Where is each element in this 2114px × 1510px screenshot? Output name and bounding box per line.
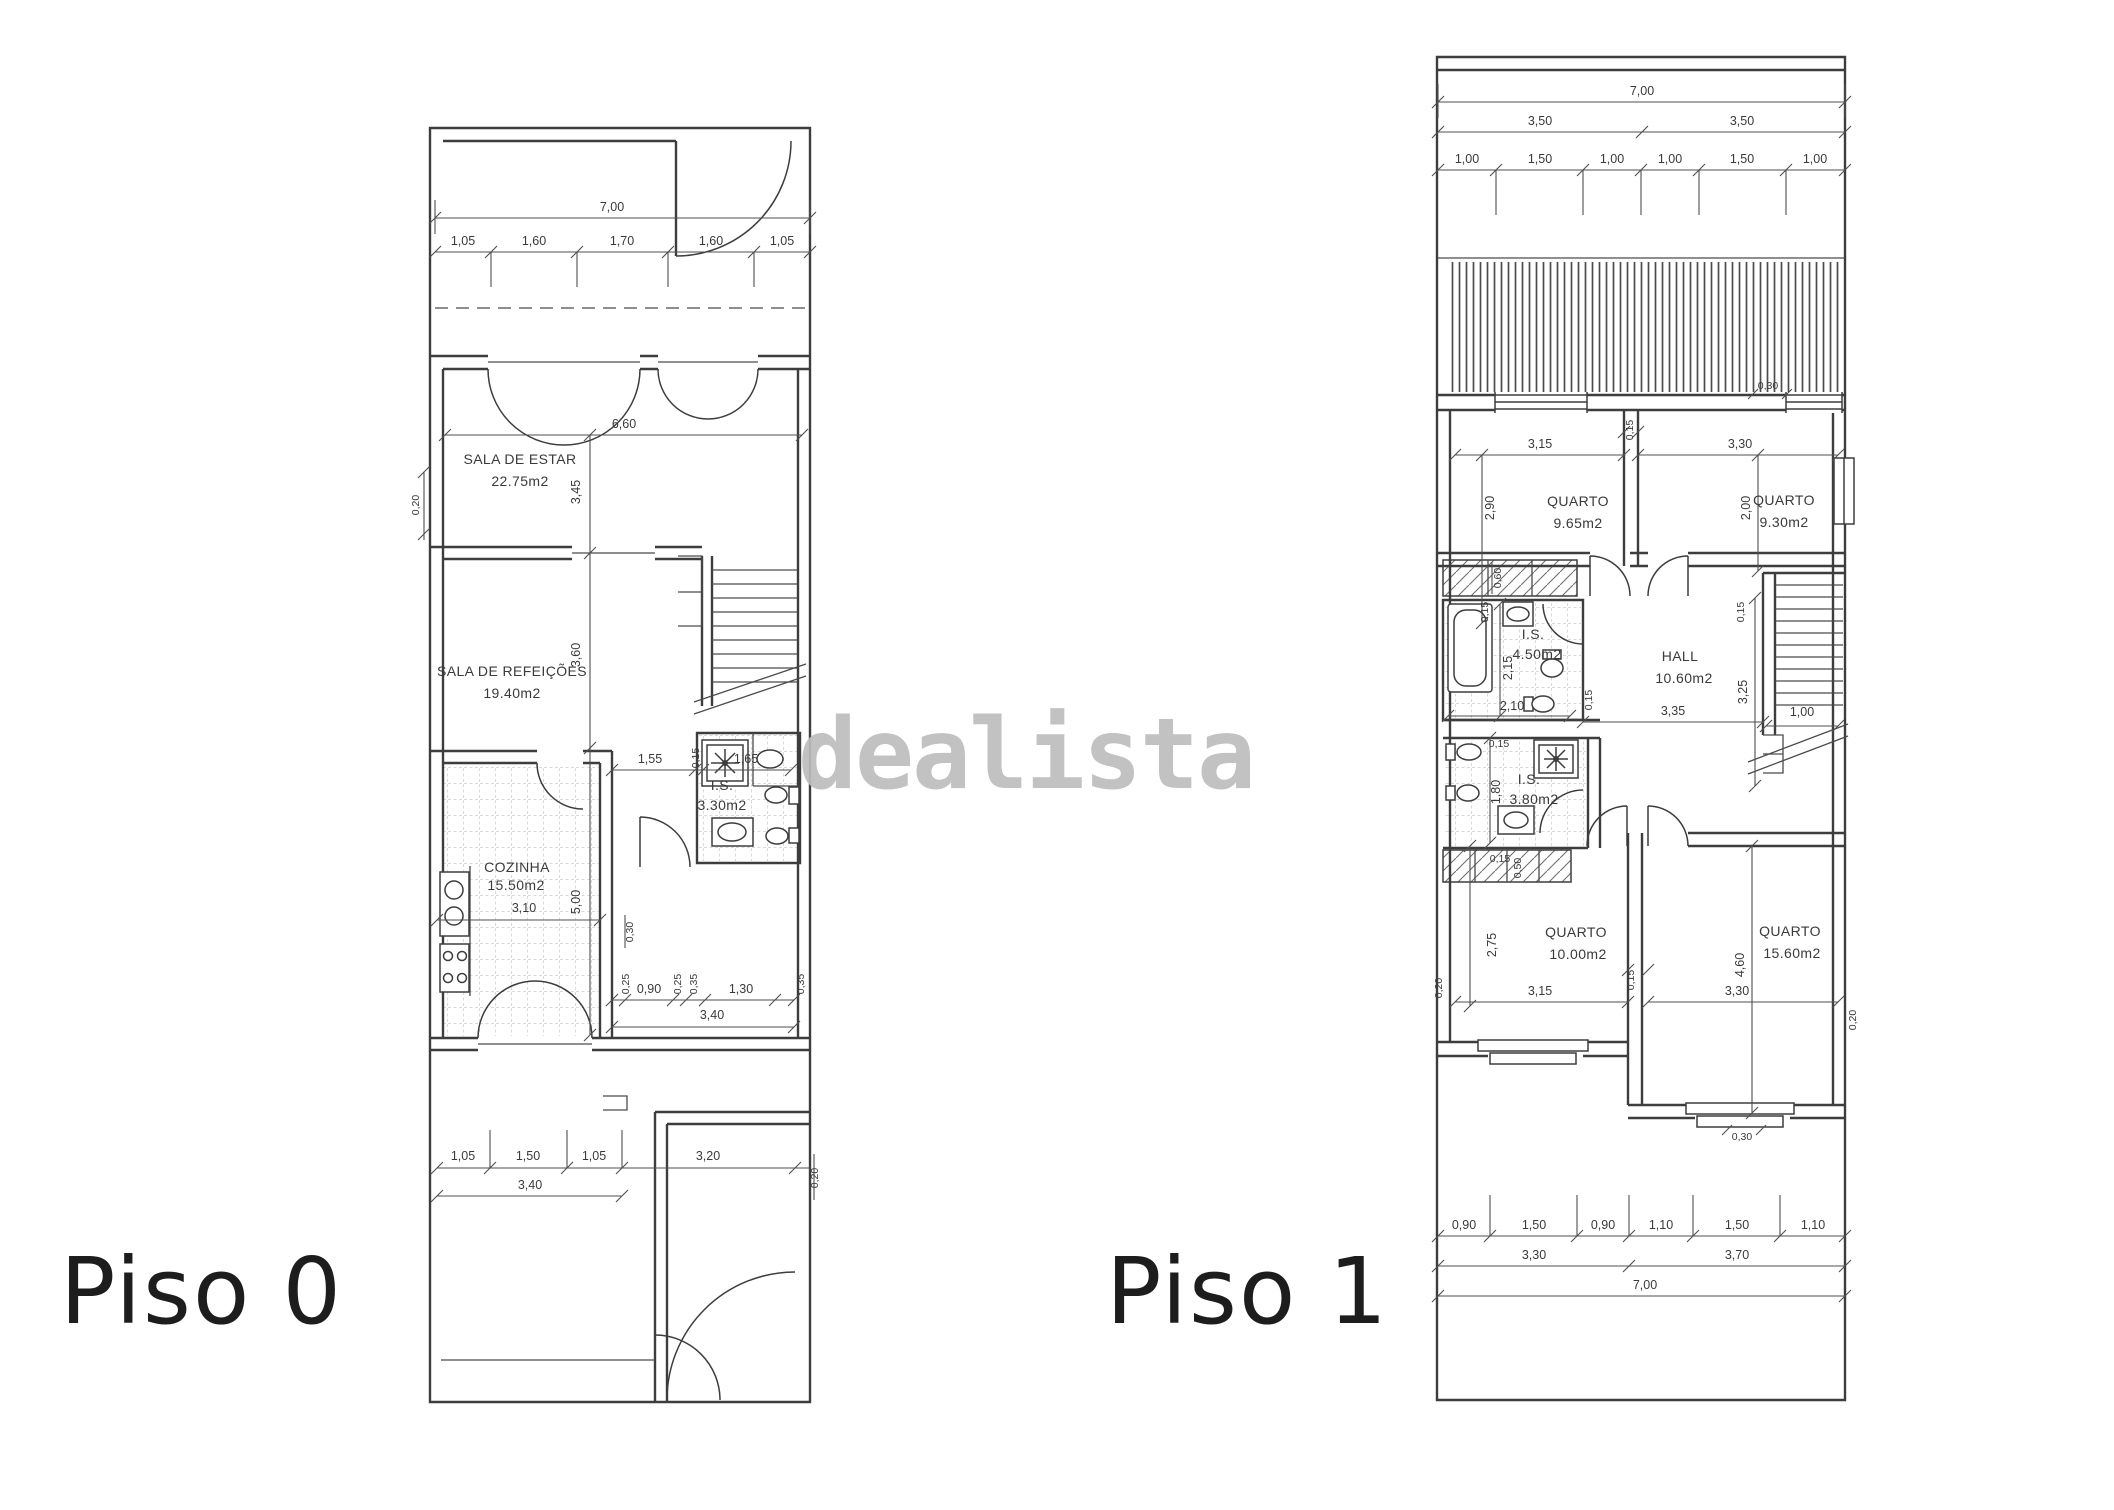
dim: 1,80 (1489, 780, 1503, 804)
room-area: 3.80m2 (1509, 791, 1558, 807)
french-door-living (488, 369, 640, 445)
dim: 7,00 (1633, 1278, 1657, 1292)
dim: 1,50 (1522, 1218, 1546, 1232)
dim: 3,25 (1736, 680, 1750, 704)
room-area: 10.60m2 (1655, 670, 1712, 686)
dim: 3,15 (1528, 984, 1552, 998)
dim: 1,05 (451, 234, 475, 248)
dim: 4,60 (1733, 953, 1747, 977)
dim: 0,20 (809, 1168, 821, 1189)
dim: 7,00 (1630, 84, 1654, 98)
room-name: HALL (1662, 648, 1699, 664)
dim: 1,50 (1528, 152, 1552, 166)
dim: 0,15 (1625, 970, 1637, 991)
toilet-tank (789, 787, 799, 804)
dim: 0,20 (1433, 978, 1445, 999)
dim: 3,50 (1730, 114, 1754, 128)
room-area: 22.75m2 (491, 473, 548, 489)
dim: 1,10 (1649, 1218, 1673, 1232)
dim: 0,15 (1479, 602, 1491, 623)
piso1-plan: 7,00 3,50 3,50 1,00 1,50 1,00 1,00 1,50 … (1432, 57, 1859, 1400)
shower-2-drain (1553, 756, 1559, 762)
dim: 0,90 (1452, 1218, 1476, 1232)
room-name: I.S. (1518, 771, 1541, 787)
dim: 0,15 (1489, 738, 1510, 750)
dim: 0,30 (1732, 1131, 1753, 1143)
room-name: COZINHA (484, 859, 550, 875)
dim: 1,05 (770, 234, 794, 248)
toilet-2 (1457, 744, 1481, 760)
toilet (765, 787, 787, 803)
dim: 2,75 (1485, 933, 1499, 957)
dim: 1,00 (1455, 152, 1479, 166)
dim: 3,50 (1528, 114, 1552, 128)
room-name: QUARTO (1753, 492, 1815, 508)
dim: 3,30 (1728, 437, 1752, 451)
washbasin (757, 750, 783, 768)
room-area: 4.50m2 (1512, 646, 1561, 662)
piso0-dimension-lines (418, 200, 816, 1202)
window-bottom-right-b (1697, 1116, 1783, 1127)
dim: 1,00 (1658, 152, 1682, 166)
dim: 1,05 (451, 1149, 475, 1163)
bidet-back (789, 828, 799, 843)
dim: 0,15 (1490, 853, 1511, 865)
stove (440, 944, 469, 992)
dim: 1,60 (522, 234, 546, 248)
dim: 3,15 (1528, 437, 1552, 451)
room-name: QUARTO (1545, 924, 1607, 940)
dim: 2,90 (1483, 496, 1497, 520)
dim: 0,90 (1591, 1218, 1615, 1232)
door-bedroom-4 (1648, 806, 1688, 846)
dim: 1,00 (1790, 705, 1814, 719)
dim: 1,30 (729, 982, 753, 996)
bidet-2 (1457, 785, 1479, 801)
room-area: 9.65m2 (1553, 515, 1602, 531)
dim: 1,50 (1730, 152, 1754, 166)
dim: 3,10 (512, 901, 536, 915)
dim: 3,40 (700, 1008, 724, 1022)
dim: 0,20 (1847, 1010, 1859, 1031)
dim: 1,05 (582, 1149, 606, 1163)
dim: 0,30 (1758, 380, 1779, 392)
toilet-2-tank (1446, 744, 1455, 760)
dim: 1,10 (1801, 1218, 1825, 1232)
room-area: 3.30m2 (697, 797, 746, 813)
window-bottom-right-a (1686, 1103, 1794, 1114)
dim: 3,40 (518, 1178, 542, 1192)
dim: 0,35 (795, 974, 807, 995)
door-bedroom-2 (1648, 556, 1688, 596)
dim: 5,00 (569, 890, 583, 914)
room-area: 15.60m2 (1763, 945, 1820, 961)
bidet-1 (1532, 696, 1554, 712)
dim: 3,20 (696, 1149, 720, 1163)
dim: 3,30 (1725, 984, 1749, 998)
dim: 1,65 (734, 752, 758, 766)
dim: 2,10 (1500, 699, 1524, 713)
room-area: 19.40m2 (483, 685, 540, 701)
piso0-plan: 7,00 1,05 1,60 1,70 1,60 1,05 0,20 6,60 … (410, 128, 821, 1402)
room-name: SALA DE REFEIÇÕES (437, 663, 587, 679)
dim: 1,60 (699, 234, 723, 248)
floor-label-piso1: Piso 1 (1106, 1238, 1389, 1345)
dim: 0,15 (1583, 690, 1595, 711)
room-name: I.S. (1522, 626, 1545, 642)
hall-door-arc (640, 817, 690, 867)
dim: 1,55 (638, 752, 662, 766)
dim: 0,50 (1512, 858, 1524, 879)
dim: 0,60 (1492, 568, 1504, 589)
piso0-dimension-labels: 7,00 1,05 1,60 1,70 1,60 1,05 0,20 6,60 … (410, 200, 821, 1192)
floorplan-page: 7,00 1,05 1,60 1,70 1,60 1,05 0,20 6,60 … (0, 0, 2114, 1510)
dim: 1,00 (1803, 152, 1827, 166)
window-bottom-left-b (1490, 1053, 1576, 1064)
dim: 1,50 (516, 1149, 540, 1163)
shower-drain (722, 760, 728, 766)
dim: 1,00 (1600, 152, 1624, 166)
room-area: 10.00m2 (1549, 946, 1606, 962)
dim: 3,35 (1661, 704, 1685, 718)
dim: 0,15 (690, 748, 702, 769)
room-name: I.S. (711, 777, 734, 793)
dim: 7,00 (600, 200, 624, 214)
dim: 3,70 (1725, 1248, 1749, 1262)
dim: 0,35 (688, 974, 700, 995)
bidet-2-back (1446, 786, 1455, 800)
dim: 0,15 (1624, 420, 1636, 441)
bidet (766, 828, 788, 844)
dim: 1,50 (1725, 1218, 1749, 1232)
dim: 6,60 (612, 417, 636, 431)
french-door-living-2 (658, 369, 758, 419)
dim: 0,30 (624, 922, 636, 943)
room-name: QUARTO (1759, 923, 1821, 939)
terrace-roof-hatch (1450, 262, 1840, 392)
dim: 1,70 (610, 234, 634, 248)
dim: 0,25 (620, 974, 632, 995)
room-area: 15.50m2 (487, 877, 544, 893)
dim: 3,30 (1522, 1248, 1546, 1262)
room-name: QUARTO (1547, 493, 1609, 509)
floor-label-piso0: Piso 0 (60, 1238, 343, 1345)
room-area: 9.30m2 (1759, 514, 1808, 530)
door-bedroom-3 (1587, 806, 1627, 846)
garage-gate-arcs (655, 1272, 795, 1400)
dim: 3,45 (569, 480, 583, 504)
window-bottom-left-a (1478, 1040, 1588, 1051)
dim: 2,00 (1739, 496, 1753, 520)
dim: 0,25 (672, 974, 684, 995)
dim: 0,90 (637, 982, 661, 996)
dim: 0,15 (1735, 602, 1747, 623)
room-name: SALA DE ESTAR (463, 451, 576, 467)
dim: 0,20 (410, 495, 422, 516)
